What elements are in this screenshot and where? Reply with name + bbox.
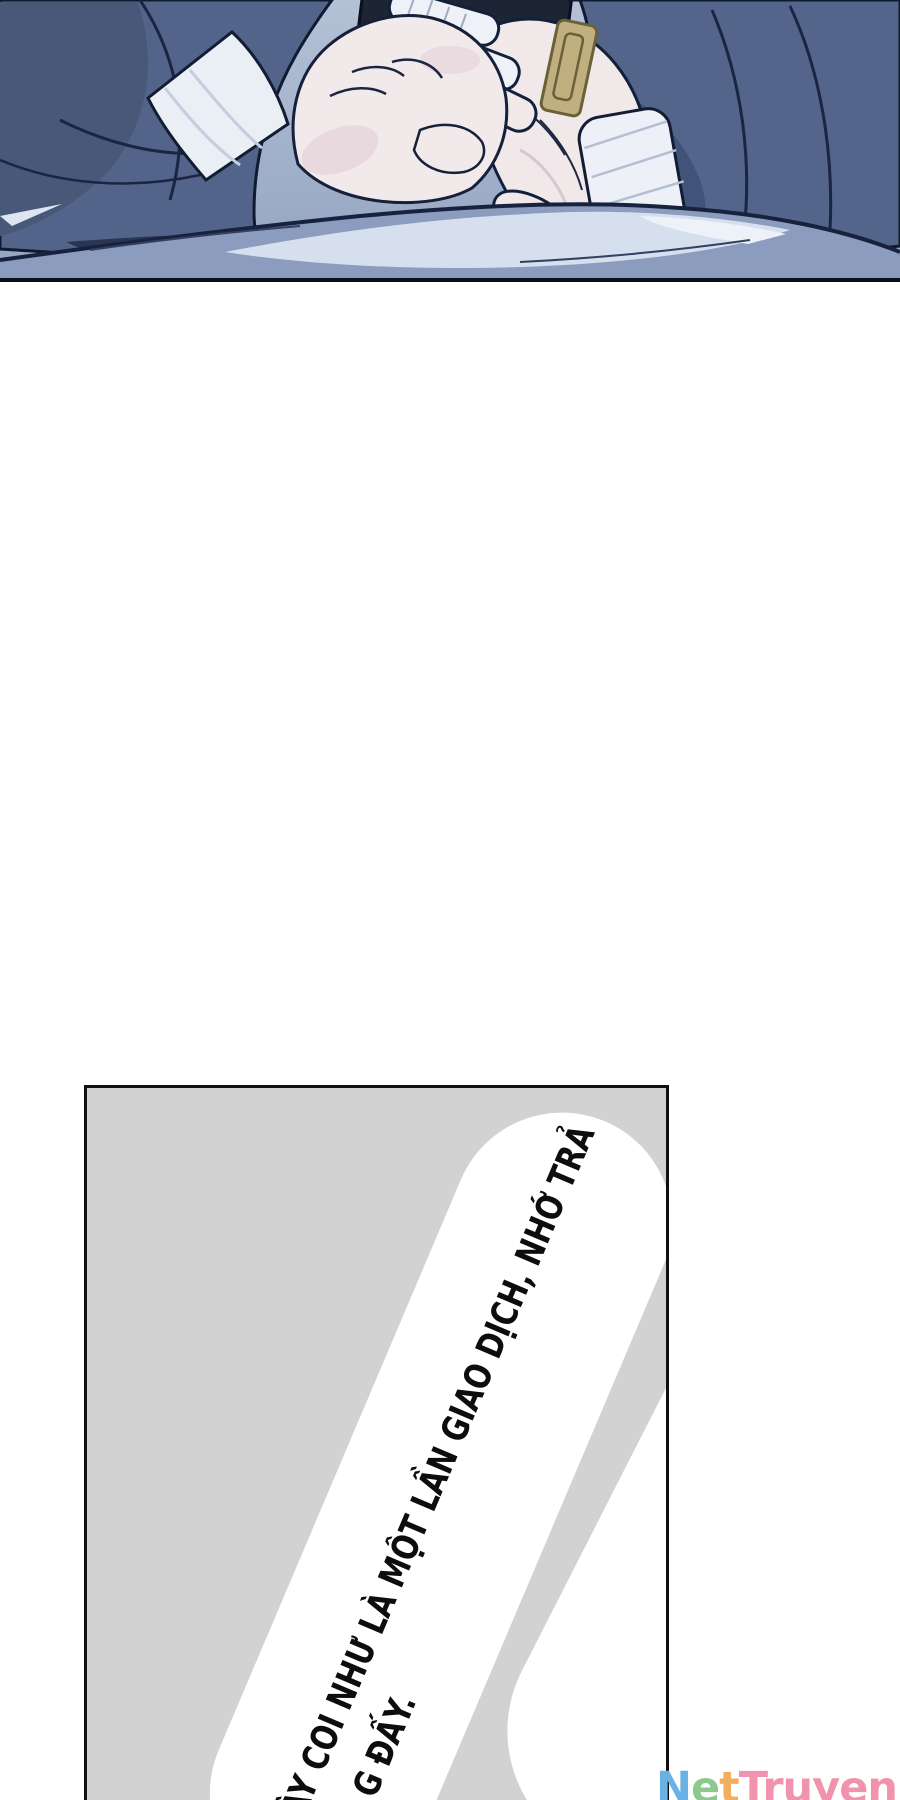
hands-holding-phone-illustration [0, 0, 900, 278]
comic-reader-page: ẦN NÀY COI NHƯ LÀ MỘT LẦN GIAO DỊCH, NHỚ… [0, 0, 900, 1800]
watermark-letter: T [739, 1763, 763, 1800]
nettruyen-watermark: NetTruyen [656, 1767, 897, 1800]
panel-gutter [0, 282, 900, 1085]
watermark-letter: t [719, 1763, 739, 1800]
watermark-letter: u [783, 1763, 813, 1800]
watermark-letter: e [691, 1763, 719, 1800]
watermark-letter: e [839, 1763, 867, 1800]
comic-panel-artwork [0, 0, 900, 282]
watermark-letter: N [656, 1763, 691, 1800]
watermark-letter: n [867, 1763, 897, 1800]
watermark-letter: r [762, 1763, 782, 1800]
watermark-letter: y [812, 1763, 839, 1800]
comic-panel-dialog: ẦN NÀY COI NHƯ LÀ MỘT LẦN GIAO DỊCH, NHỚ… [84, 1085, 669, 1800]
